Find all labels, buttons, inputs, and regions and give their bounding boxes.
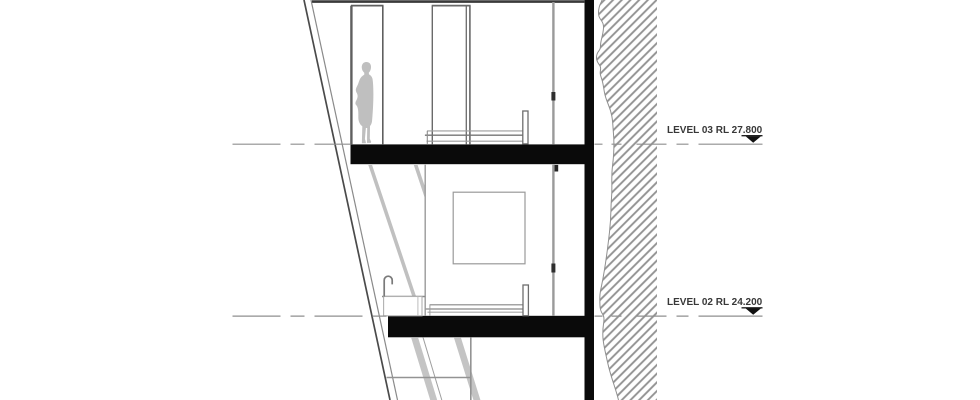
svg-text:LEVEL 02 RL 24.200: LEVEL 02 RL 24.200 xyxy=(667,297,763,308)
svg-text:LEVEL 03 RL 27.800: LEVEL 03 RL 27.800 xyxy=(667,125,763,136)
